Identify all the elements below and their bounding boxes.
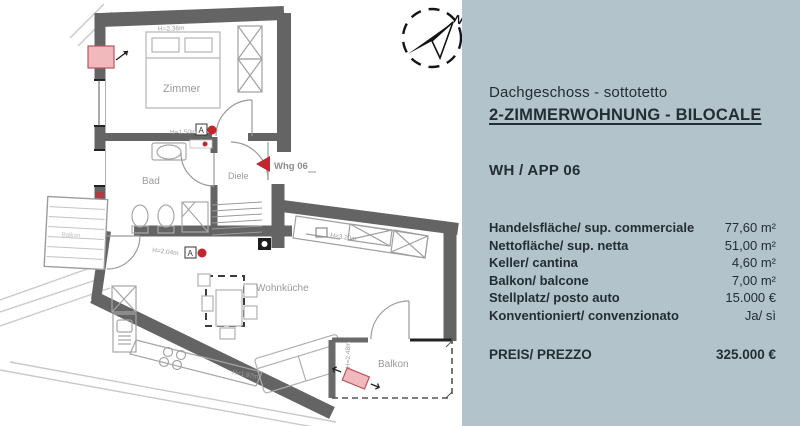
spec-label: Nettofläche/ sup. netta <box>489 237 628 255</box>
spec-value: Ja/ sì <box>745 307 776 325</box>
spec-label: Keller/ cantina <box>489 254 578 272</box>
bathroom-fixtures <box>132 143 208 233</box>
price-value: 325.000 € <box>716 347 776 362</box>
zimmer-door <box>216 100 252 136</box>
room-label-zimmer: Zimmer <box>163 83 201 95</box>
unit-number: WH / APP 06 <box>489 162 776 179</box>
spec-label: Konventioniert/ convenzionato <box>489 307 679 325</box>
dim-zimmer-door: H=1.50m <box>170 129 197 136</box>
wardrobe <box>238 26 262 92</box>
entrance-arrow-icon <box>256 156 270 172</box>
price-label: PREIS/ PREZZO <box>489 347 592 362</box>
spec-value: 15.000 € <box>725 289 776 307</box>
svg-text:A: A <box>199 126 205 135</box>
room-label-diele: Diele <box>228 171 249 181</box>
spec-row-parking: Stellplatz/ posto auto 15.000 € <box>489 289 776 307</box>
compass-needle-light <box>432 22 453 58</box>
spec-table: Handelsfläche/ sup. commerciale 77,60 m²… <box>489 219 776 324</box>
dim-wohnkueche-top: H=2.04m <box>152 247 179 257</box>
room-label-bad: Bad <box>142 176 160 187</box>
compass-north-label: N <box>452 12 462 28</box>
spec-row-subsidized: Konventioniert/ convenzionato Ja/ sì <box>489 307 776 325</box>
bed <box>146 32 220 108</box>
neighbor-balcony-label: Balkon <box>62 232 81 239</box>
price-row: PREIS/ PREZZO 325.000 € <box>489 347 776 362</box>
spec-row-commercial-area: Handelsfläche/ sup. commerciale 77,60 m² <box>489 219 776 237</box>
spec-value: 7,00 m² <box>732 272 776 290</box>
spec-label: Balkon/ balcone <box>489 272 589 290</box>
entrance-label: Whg 06 <box>274 161 308 172</box>
room-label-wohnkueche: Wohnküche <box>256 283 309 294</box>
dim-zimmer-top: H=2.36m <box>158 25 185 33</box>
spec-label: Handelsfläche/ sup. commerciale <box>489 219 694 237</box>
apartment-type-title: 2-ZIMMERWOHNUNG - BILOCALE <box>489 106 776 125</box>
neighbor-balcony: Balkon <box>44 196 108 269</box>
floorplan: Balkon A A Whg 06 Zimmer Bad Diele Wohnk… <box>0 0 462 426</box>
svg-text:A: A <box>188 249 194 258</box>
spec-value: 77,60 m² <box>725 219 776 237</box>
wohnkueche-door <box>107 236 140 269</box>
dining-set <box>198 274 257 339</box>
new-window-marker <box>88 46 128 68</box>
spec-row-net-area: Nettofläche/ sup. netta 51,00 m² <box>489 237 776 255</box>
dim-tv-wall: H=3.20m <box>330 232 357 243</box>
spec-row-cellar: Keller/ cantina 4,60 m² <box>489 254 776 272</box>
room-label-balkon: Balkon <box>378 359 409 370</box>
spec-value: 51,00 m² <box>725 237 776 255</box>
real-estate-flyer: Balkon A A Whg 06 Zimmer Bad Diele Wohnk… <box>0 0 800 426</box>
entrance-marker: Whg 06 <box>256 156 316 172</box>
spec-label: Stellplatz/ posto auto <box>489 289 620 307</box>
compass: N <box>403 9 462 67</box>
corner-icon-dot <box>262 241 268 247</box>
spec-row-balcony: Balkon/ balcone 7,00 m² <box>489 272 776 290</box>
info-panel: Dachgeschoss - sottotetto 2-ZIMMERWOHNUN… <box>462 0 800 426</box>
dim-balcony-door: H=2.48m <box>345 341 352 368</box>
spec-value: 4,60 m² <box>732 254 776 272</box>
floor-line: Dachgeschoss - sottotetto <box>489 84 776 101</box>
